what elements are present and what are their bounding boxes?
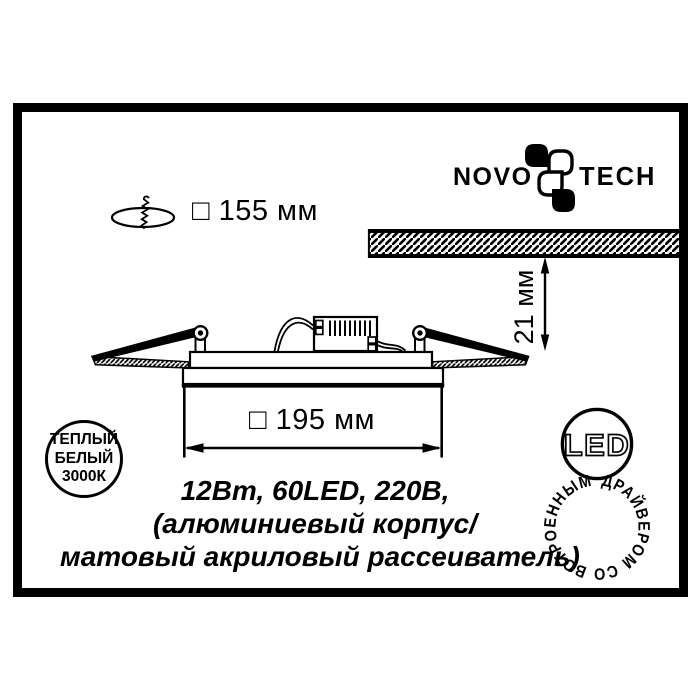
fixture-top-plate xyxy=(190,352,432,368)
driver-heatsink-ribs xyxy=(330,321,370,337)
diagram-canvas: NOVO TECH xyxy=(0,0,700,700)
spec-line-diffuser: матовый акриловый рассеиватель) xyxy=(60,540,570,573)
warm-white-badge-text: ТЕПЛЫЙ БЕЛЫЙ 3000К xyxy=(34,431,134,487)
spec-line-housing: (алюминиевый корпус/ xyxy=(60,507,570,540)
width-dimension-arrow xyxy=(185,443,442,453)
recessed-panel-cross-section xyxy=(92,317,529,458)
clover-petal-solid-top-left xyxy=(525,144,548,167)
spring-clip-arm-left xyxy=(92,328,198,362)
width-dimension-label: □ 195 мм xyxy=(162,406,462,435)
warm-white-line2: БЕЛЫЙ xyxy=(34,450,134,469)
led-badge-center-text: LED xyxy=(564,428,631,463)
recess-depth-arrow xyxy=(541,257,550,351)
warm-white-line3: 3000К xyxy=(34,468,134,487)
hatched-ceiling-section xyxy=(368,229,679,258)
spec-text-block: 12Вт, 60LED, 220В, (алюминиевый корпус/ … xyxy=(60,474,570,573)
warm-white-line1: ТЕПЛЫЙ xyxy=(34,431,134,450)
clover-petal-solid-bottom-right xyxy=(552,189,575,212)
screw-ceiling-cutout-icon xyxy=(112,196,174,228)
cutout-dimension-label: □ 155 мм xyxy=(192,197,318,226)
spec-line-power: 12Вт, 60LED, 220В, xyxy=(60,474,570,507)
diagram-line-art: LED ДРАЙВЕРОМ СО ВСТРОЕННЫМ xyxy=(0,0,700,700)
recess-depth-label: 21 мм xyxy=(510,257,538,357)
novotech-clover-icon xyxy=(525,144,575,212)
fixture-body-band xyxy=(183,368,443,384)
